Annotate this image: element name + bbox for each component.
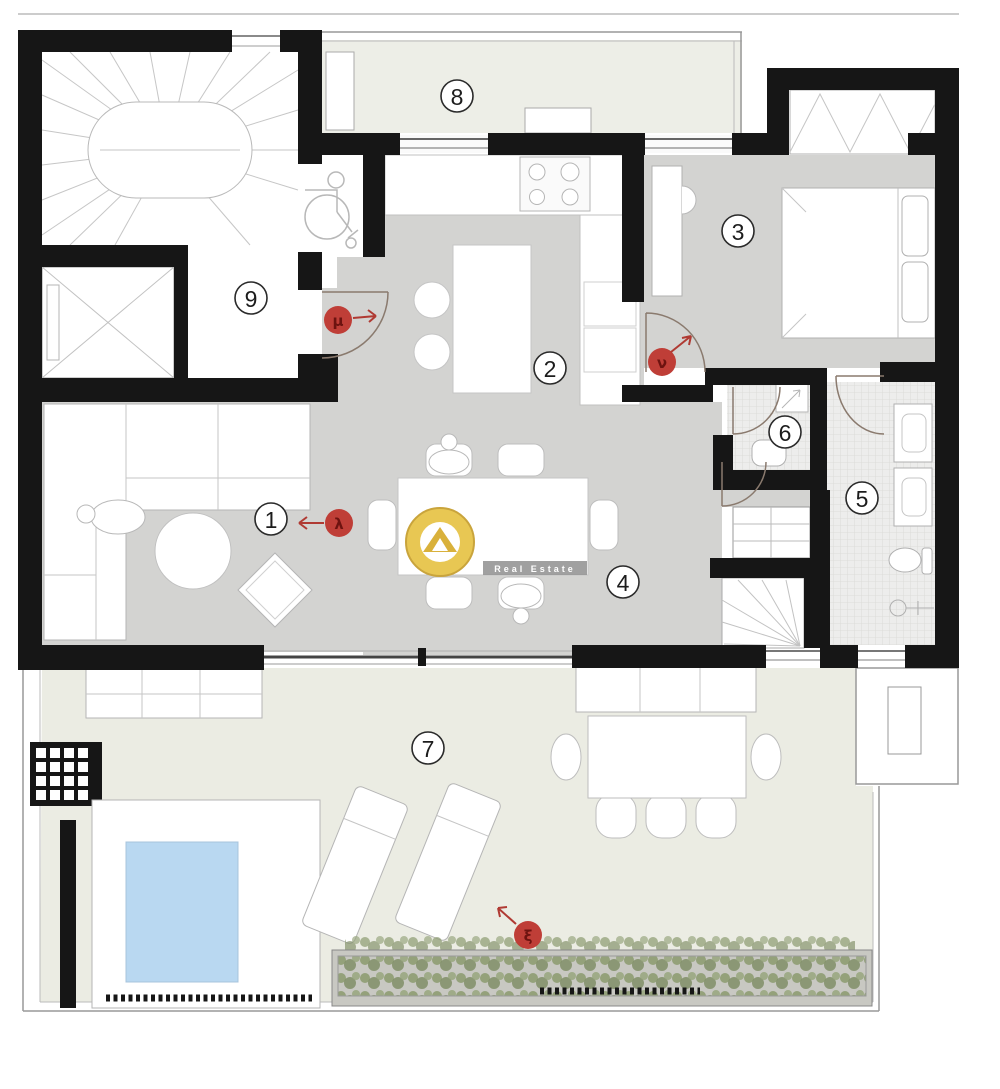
kitchen-counter	[385, 155, 640, 215]
privacy-wall	[60, 820, 76, 1008]
person-figure	[513, 608, 529, 624]
svg-text:7: 7	[422, 736, 435, 762]
room-label-7: 7	[412, 732, 444, 764]
stool	[414, 334, 450, 370]
svg-text:6: 6	[779, 420, 792, 446]
balcony-planter	[525, 108, 591, 133]
svg-text:λ: λ	[334, 515, 344, 533]
room-label-1: 1	[255, 503, 287, 535]
watermark-line1: Golden	[477, 510, 584, 545]
coffee-table	[155, 513, 231, 589]
chair	[498, 444, 544, 476]
svg-text:ν: ν	[657, 354, 667, 372]
spiral-staircase	[42, 52, 298, 245]
room-label-3: 3	[722, 215, 754, 247]
watermark: Golden Home Real Estate	[406, 508, 587, 577]
outdoor-table	[588, 716, 746, 798]
chair	[646, 794, 686, 838]
elevator	[42, 267, 187, 378]
kitchen-island	[453, 245, 531, 393]
entry-door-top	[232, 36, 280, 46]
chair	[551, 734, 581, 780]
balcony-planter	[326, 52, 354, 130]
svg-text:μ: μ	[332, 312, 343, 330]
closet	[733, 507, 810, 558]
svg-text:2: 2	[544, 356, 557, 382]
svg-text:5: 5	[856, 486, 869, 512]
room-label-9: 9	[235, 282, 267, 314]
svg-text:4: 4	[617, 570, 630, 596]
pool	[126, 842, 238, 982]
chair	[368, 500, 396, 550]
floor-plan-drawing: Golden Home Real Estate 1 2 3 4 5 6	[0, 0, 1000, 1089]
person-figure	[91, 500, 145, 534]
shower	[776, 382, 808, 412]
svg-text:3: 3	[732, 219, 745, 245]
person-figure	[441, 434, 457, 450]
stove	[520, 157, 590, 211]
chair	[696, 794, 736, 838]
svg-text:8: 8	[451, 84, 464, 110]
room-label-5: 5	[846, 482, 878, 514]
svg-text:ξ: ξ	[524, 927, 533, 945]
lower-staircase	[722, 578, 804, 648]
room-label-2: 2	[534, 352, 566, 384]
room-label-6: 6	[769, 416, 801, 448]
room-label-8: 8	[441, 80, 473, 112]
chair	[596, 794, 636, 838]
outdoor-sofa	[86, 668, 262, 718]
floor-plan-page: Golden Home Real Estate 1 2 3 4 5 6	[0, 0, 1000, 1089]
svg-text:9: 9	[245, 286, 258, 312]
stool	[414, 282, 450, 318]
chair	[426, 577, 472, 609]
chair	[751, 734, 781, 780]
dresser	[652, 166, 682, 296]
outdoor-bench	[576, 666, 756, 712]
chair	[590, 500, 618, 550]
watermark-tagline: Real Estate	[494, 564, 576, 574]
svg-text:1: 1	[265, 507, 278, 533]
toilet	[889, 548, 921, 572]
room-label-4: 4	[607, 566, 639, 598]
